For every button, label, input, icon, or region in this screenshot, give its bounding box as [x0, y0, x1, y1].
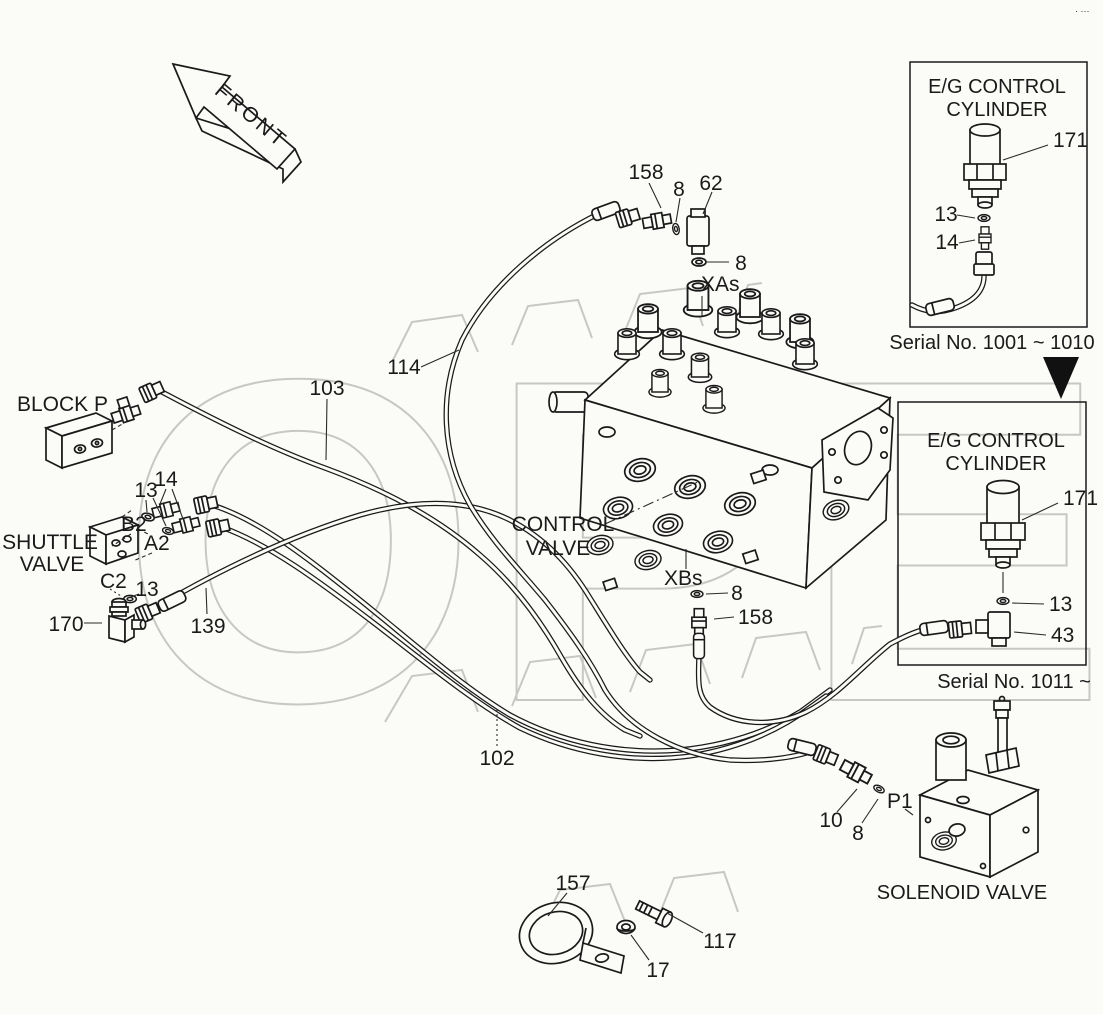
washer-8-top	[672, 223, 680, 235]
callout-158-top: 158	[628, 161, 663, 184]
callout-62: 62	[699, 172, 722, 195]
fitting-158-xbs	[692, 609, 706, 636]
solenoid-coil	[936, 733, 966, 780]
callout-157: 157	[555, 872, 590, 895]
callout-8-p1: 8	[852, 822, 864, 845]
oring-8-xbs	[691, 591, 703, 598]
inset-bottom-caption: Serial No. 1011 ~	[937, 671, 1091, 693]
port-b2: B2	[121, 513, 147, 536]
corner-mark: · ···	[1075, 6, 1090, 16]
port-a2: A2	[144, 532, 170, 555]
eg-cylinder-a	[964, 124, 1006, 208]
shuttle-valve-label2: VALVE	[20, 553, 85, 576]
callout-8-top: 8	[673, 178, 685, 201]
oring-13-a	[978, 215, 990, 222]
bolt-117	[634, 898, 674, 929]
callout-14-left: 14	[154, 468, 178, 491]
callout-13-c2: 13	[135, 578, 158, 601]
shuttle-valve-label1: SHUTTLE	[2, 531, 98, 554]
solenoid-valve-label: SOLENOID VALVE	[877, 882, 1047, 904]
callout-8-xas: 8	[735, 252, 747, 275]
washer-17	[617, 921, 635, 934]
callout-8-xbs: 8	[731, 582, 743, 605]
fitting-158-top	[642, 211, 672, 231]
clamp-157	[512, 894, 624, 973]
callout-139: 139	[190, 615, 225, 638]
control-valve-label2: VALVE	[526, 537, 591, 560]
inset-bottom-title2: CYLINDER	[945, 453, 1046, 475]
callout-117: 117	[703, 930, 736, 953]
parts-diagram-page: OPEX · ··· FRONT E/G CONTROL CYLINDER	[0, 0, 1103, 1014]
callout-114: 114	[387, 356, 421, 379]
block-p-label: BLOCK P	[17, 393, 108, 416]
oring-8-xas	[692, 258, 706, 266]
callout-171-b: 171	[1063, 487, 1098, 510]
callout-103: 103	[309, 377, 344, 400]
callout-170: 170	[48, 613, 83, 636]
callout-158-xbs: 158	[738, 606, 773, 629]
piping-diagram: OPEX · ··· FRONT E/G CONTROL CYLINDER	[0, 0, 1103, 1014]
inset-top-title1: E/G CONTROL	[928, 76, 1066, 98]
oring-13-b	[997, 598, 1009, 605]
port-xas: XAs	[701, 273, 740, 296]
inset-top-caption: Serial No. 1001 ~ 1010	[889, 332, 1094, 354]
callout-171-a: 171	[1053, 129, 1088, 152]
callout-43-b: 43	[1051, 624, 1074, 647]
port-p1: P1	[887, 790, 913, 813]
port-c2: C2	[100, 570, 127, 593]
elbow-62	[687, 209, 709, 254]
control-valve-label1: CONTROL	[512, 513, 615, 536]
inset-bottom-title1: E/G CONTROL	[927, 430, 1065, 452]
callout-14-a: 14	[935, 231, 959, 254]
front-arrow: FRONT	[173, 64, 301, 182]
callout-10: 10	[819, 809, 842, 832]
fitting-14-a	[979, 227, 991, 249]
callout-102: 102	[479, 747, 514, 770]
callout-17: 17	[646, 959, 669, 982]
inset-top-title2: CYLINDER	[946, 99, 1047, 121]
port-xbs: XBs	[664, 567, 703, 590]
callout-13-b: 13	[1049, 593, 1072, 616]
callout-13-a: 13	[934, 203, 957, 226]
